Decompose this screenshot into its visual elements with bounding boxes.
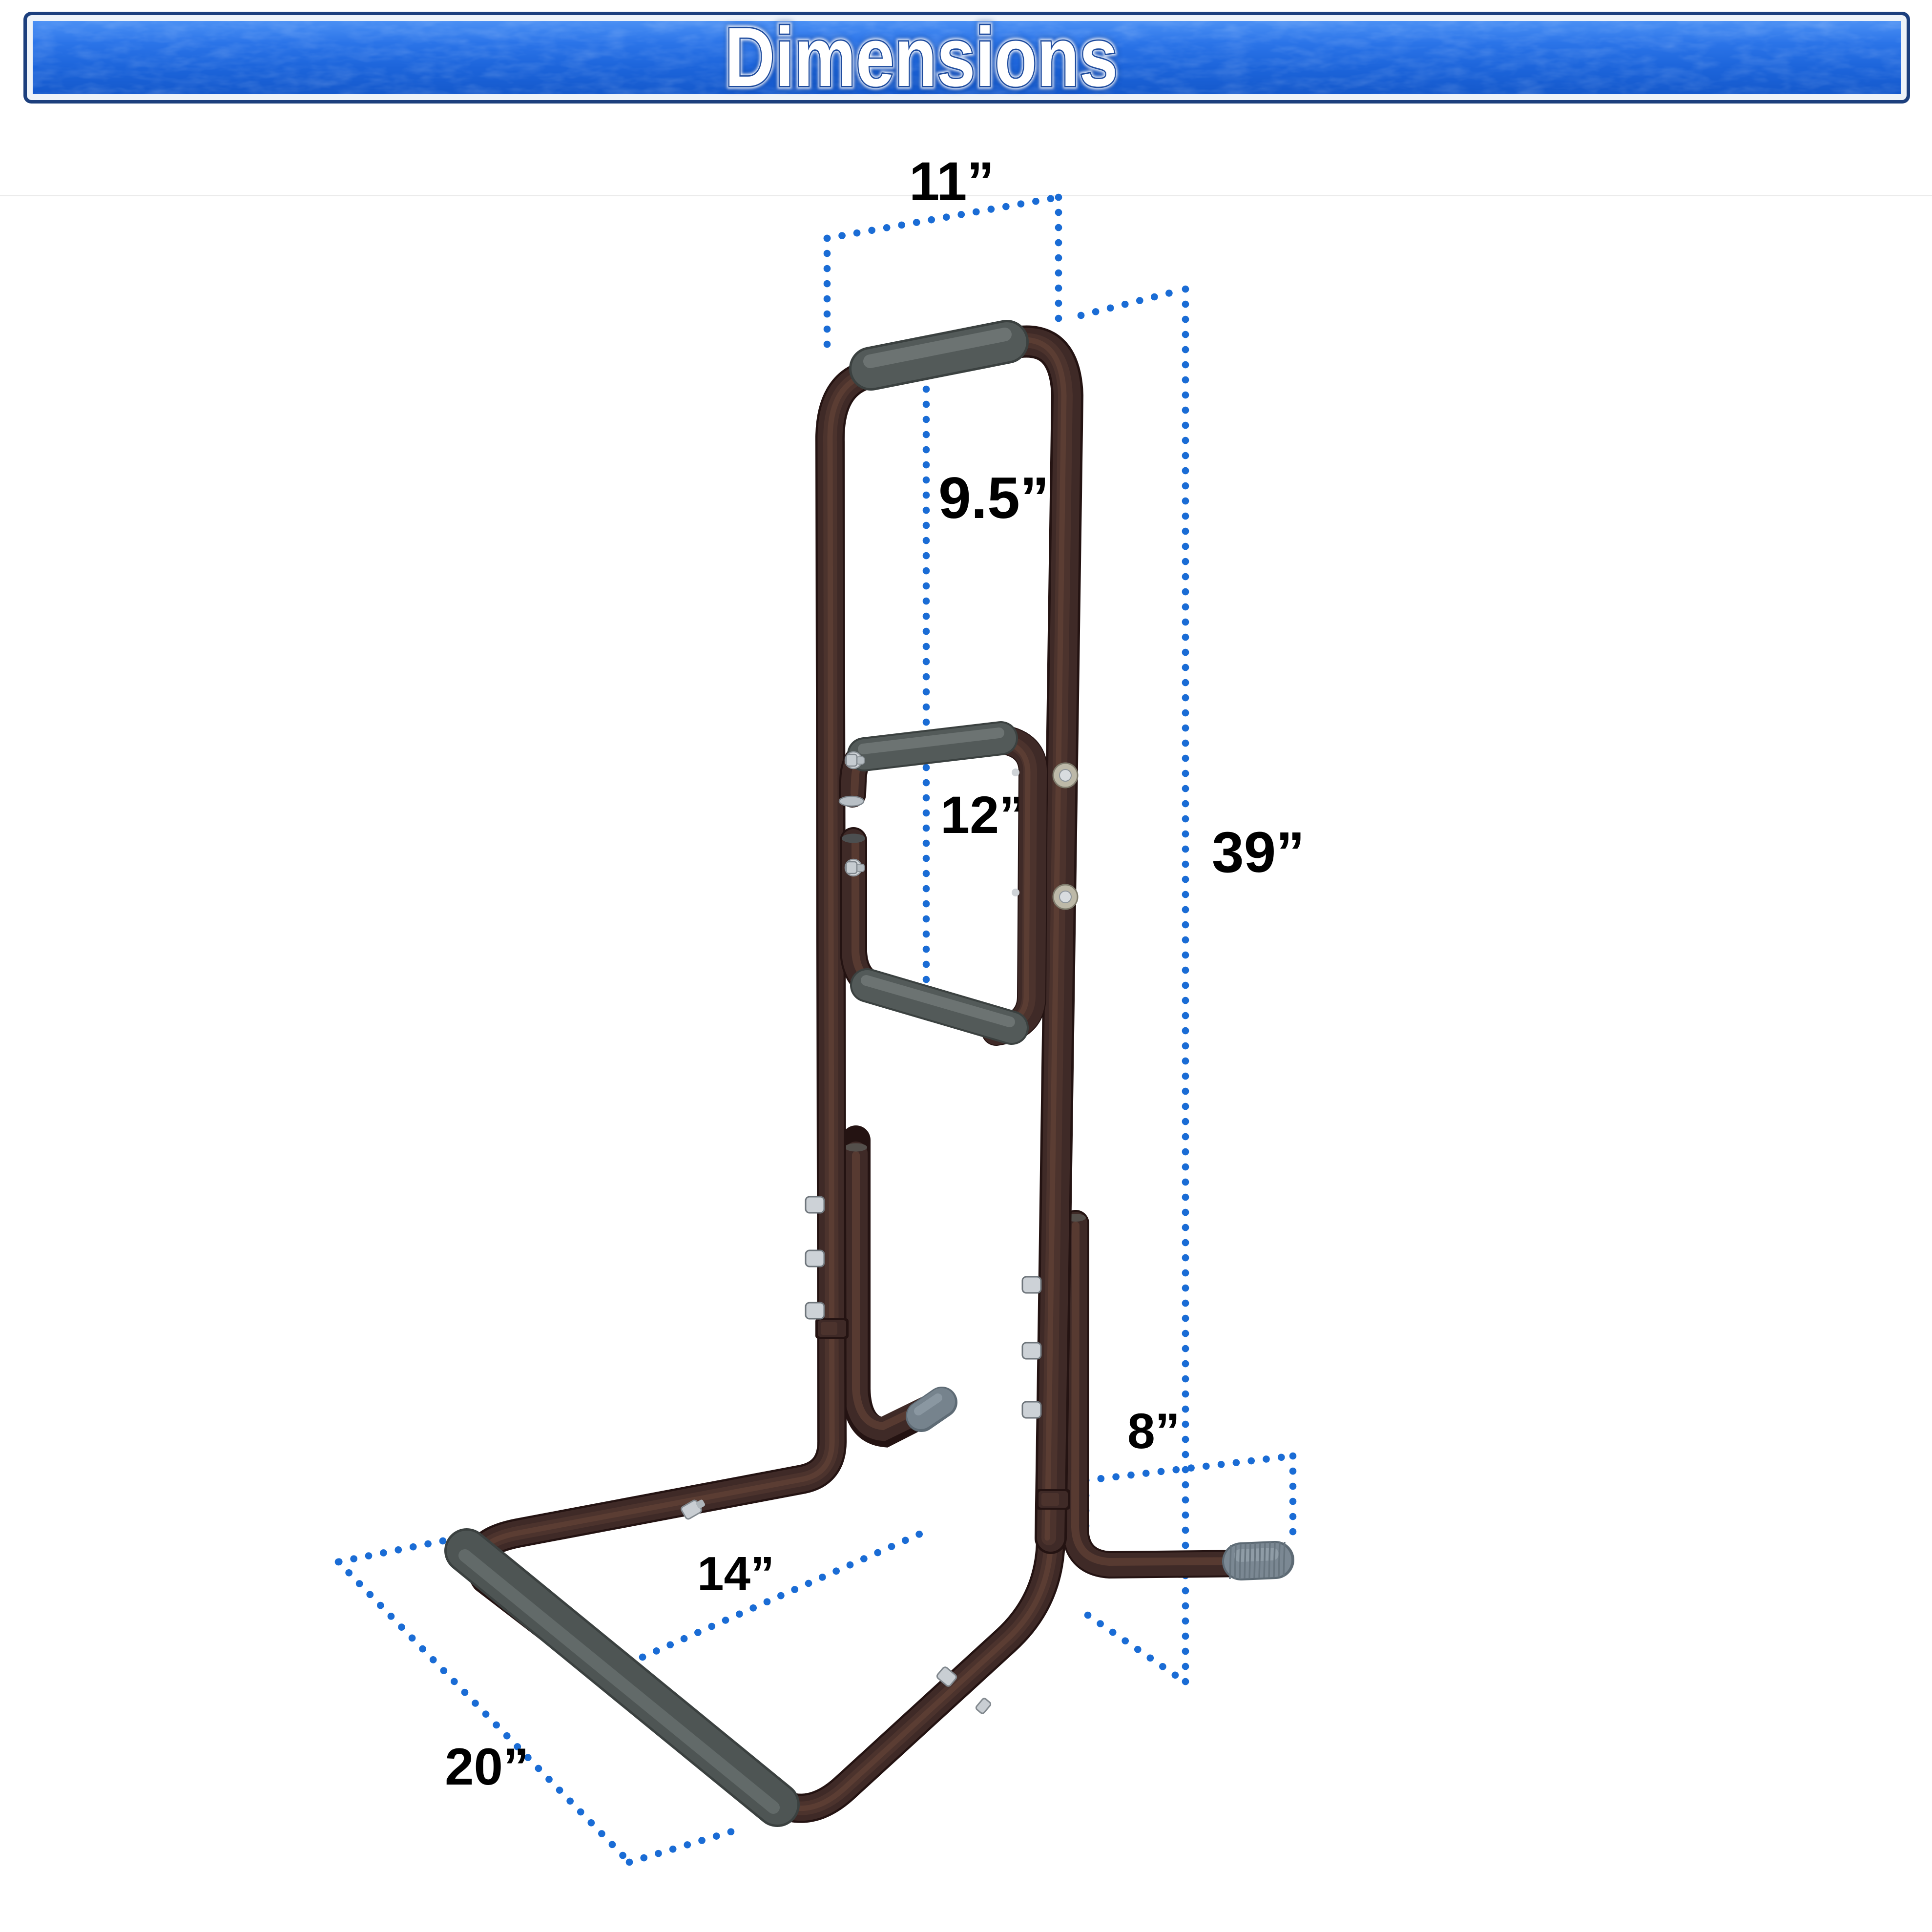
svg-text:11”: 11”: [909, 151, 994, 212]
svg-text:20”: 20”: [445, 1737, 529, 1796]
svg-text:9.5”: 9.5”: [938, 465, 1049, 531]
svg-text:Dimensions: Dimensions: [725, 10, 1118, 104]
svg-text:12”: 12”: [940, 785, 1025, 844]
svg-text:8”: 8”: [1127, 1403, 1180, 1459]
svg-text:14”: 14”: [697, 1547, 774, 1600]
svg-text:39”: 39”: [1212, 820, 1305, 885]
